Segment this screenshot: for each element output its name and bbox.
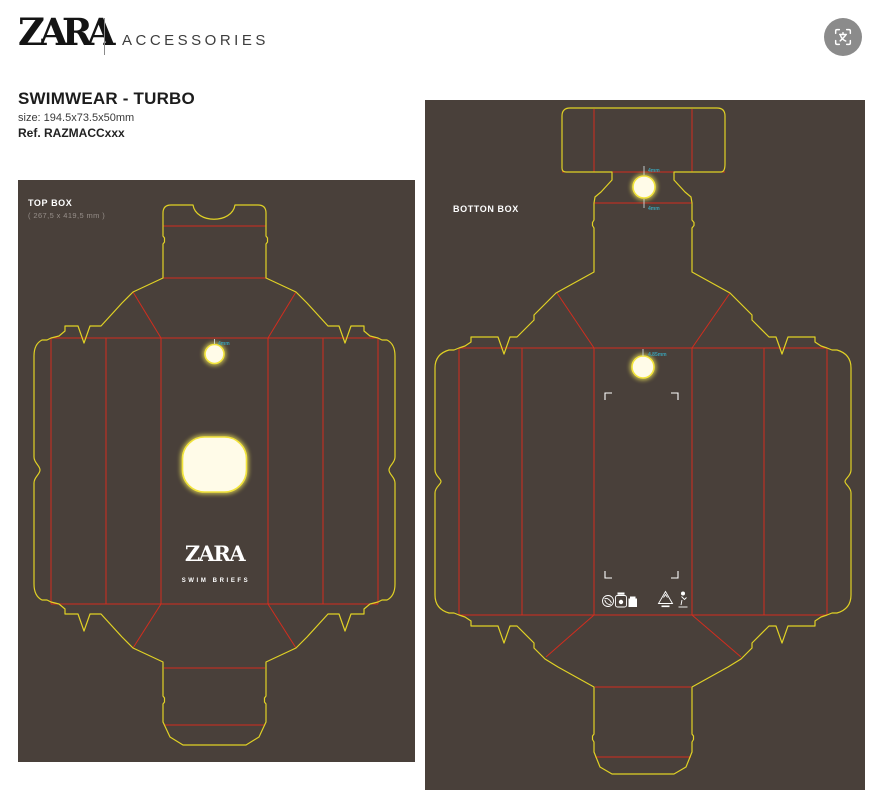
zara-logo: ZARA xyxy=(18,10,110,54)
top-box-label: TOP BOX xyxy=(28,198,72,208)
size-text: size: 194.5x73.5x50mm xyxy=(18,112,134,124)
page-title: SWIMWEAR - TURBO xyxy=(18,89,195,109)
card-icon xyxy=(629,597,638,608)
top-box-product-line: SWIM BRIEFS xyxy=(182,578,251,584)
translate-icon xyxy=(832,26,854,48)
top-box-window-hole xyxy=(183,437,247,492)
bin-icon xyxy=(616,593,627,608)
green-dot-icon xyxy=(603,596,614,607)
page-root: ZARA ACCESSORIES SWIMWEAR - TURBO size: … xyxy=(0,0,882,804)
bottom-box-panel: 4mm 4mm 4.85mm xyxy=(425,100,865,790)
header-divider xyxy=(104,18,105,55)
tidyman-icon xyxy=(679,592,688,608)
recycle-triangle-icon xyxy=(659,592,673,608)
top-box-dieline: 4mm ZARA SWIM BRIEFS TOP BOX ( 267,5 x 4… xyxy=(18,180,415,762)
top-box-annotation-text: 4mm xyxy=(218,341,230,347)
material-icons xyxy=(603,592,688,608)
reference-text: Ref. RAZMACCxxx xyxy=(18,126,125,140)
top-box-hang-hole xyxy=(205,345,224,364)
header-section-label: ACCESSORIES xyxy=(122,32,269,49)
top-box-panel: 4mm ZARA SWIM BRIEFS TOP BOX ( 267,5 x 4… xyxy=(18,180,415,762)
bottom-box-annotation-top: 4mm xyxy=(648,168,660,174)
bottom-box-neck-hole: 4mm 4mm xyxy=(633,166,660,212)
crop-marks xyxy=(605,393,678,578)
bottom-box-annotation-mid: 4mm xyxy=(648,206,660,212)
top-box-zara-logo: ZARA xyxy=(185,541,247,566)
top-box-dimensions: ( 267,5 x 419,5 mm ) xyxy=(28,211,105,220)
bottom-box-label: BOTTON BOX xyxy=(453,204,519,214)
bottom-box-dieline: 4mm 4mm 4.85mm xyxy=(425,100,865,790)
bottom-box-hang-hole: 4.85mm xyxy=(632,349,667,378)
translate-button[interactable] xyxy=(824,18,862,56)
bottom-box-annotation-hole: 4.85mm xyxy=(648,352,667,358)
